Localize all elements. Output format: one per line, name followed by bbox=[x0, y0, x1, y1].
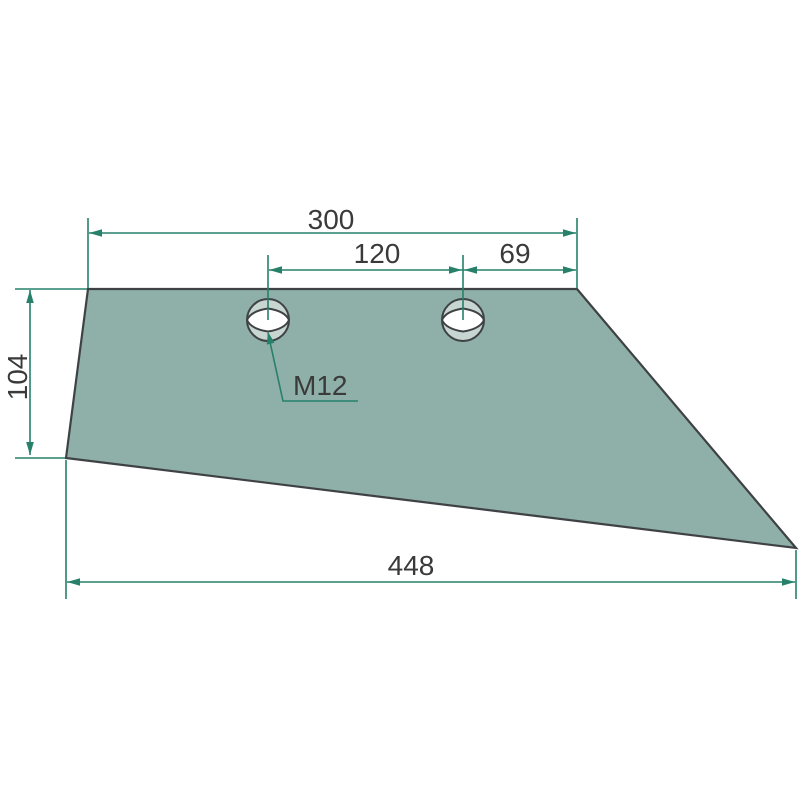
part-shape bbox=[66, 289, 796, 548]
dim-label-top-width: 300 bbox=[308, 204, 355, 235]
arrowhead-left bbox=[67, 578, 80, 586]
dim-label-left-height: 104 bbox=[2, 354, 33, 401]
arrowhead-right bbox=[449, 266, 462, 274]
arrowhead-up bbox=[26, 290, 34, 303]
dim-label-hole-spacing: 120 bbox=[354, 238, 401, 269]
arrowhead-down bbox=[26, 442, 34, 455]
arrowhead-right bbox=[782, 578, 795, 586]
arrowhead-left bbox=[89, 229, 102, 237]
dim-hole-spacing: 120 bbox=[269, 238, 463, 274]
arrowhead-right bbox=[563, 229, 576, 237]
dim-label-hole-to-edge: 69 bbox=[499, 238, 530, 269]
dim-hole-to-edge: 69 bbox=[463, 238, 576, 274]
arrowhead-left bbox=[464, 266, 477, 274]
arrowhead-right bbox=[563, 266, 576, 274]
thread-label: M12 bbox=[293, 370, 347, 401]
part-face bbox=[66, 289, 796, 548]
technical-drawing: 300 120 69 104 448 M12 bbox=[0, 0, 800, 800]
arrowhead-left bbox=[269, 266, 282, 274]
dim-label-overall-length: 448 bbox=[388, 550, 435, 581]
